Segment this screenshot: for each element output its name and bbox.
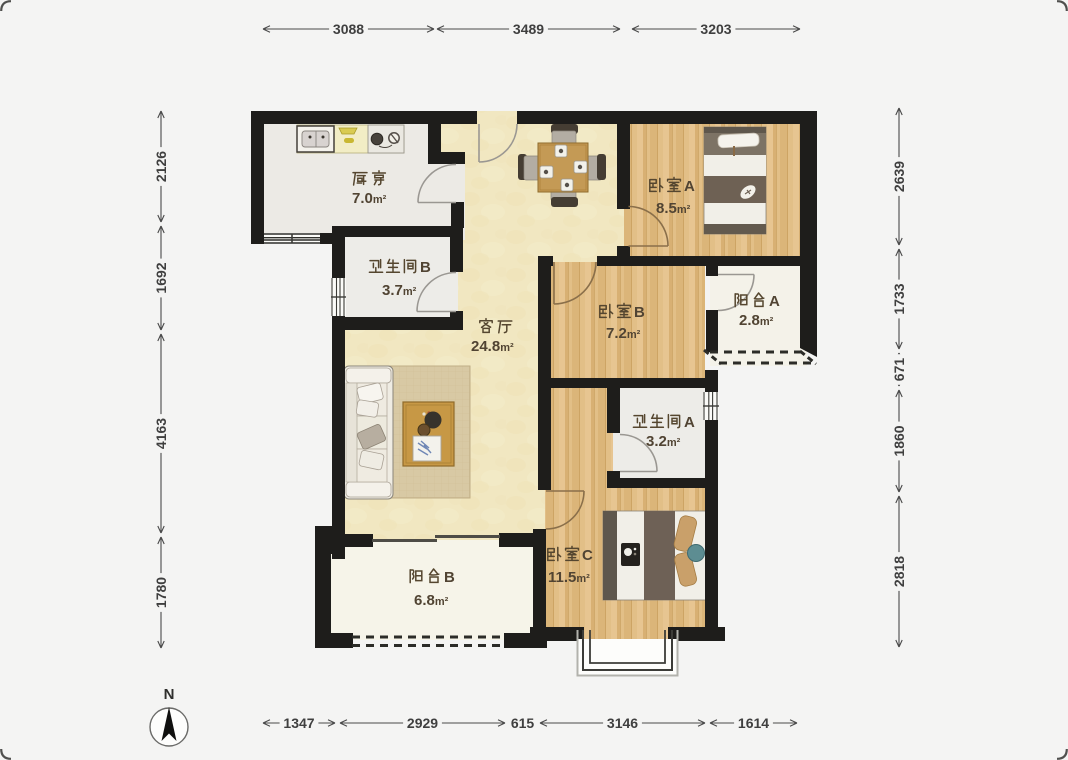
svg-text:B: B: [634, 304, 645, 321]
svg-text:1692: 1692: [153, 262, 169, 293]
svg-text:3203: 3203: [700, 21, 731, 37]
svg-text:C: C: [582, 547, 593, 564]
svg-text:1860: 1860: [891, 425, 907, 456]
svg-text:N: N: [164, 686, 175, 703]
svg-text:A: A: [684, 178, 695, 195]
svg-text:671: 671: [891, 358, 907, 382]
svg-text:3489: 3489: [513, 21, 544, 37]
svg-text:B: B: [420, 259, 431, 276]
svg-text:A: A: [684, 414, 695, 431]
svg-text:1733: 1733: [891, 283, 907, 314]
svg-text:2639: 2639: [891, 161, 907, 192]
svg-text:3146: 3146: [607, 715, 638, 731]
svg-text:2126: 2126: [153, 151, 169, 182]
svg-text:615: 615: [511, 715, 535, 731]
svg-text:2929: 2929: [407, 715, 438, 731]
svg-text:A: A: [769, 293, 780, 310]
svg-text:1780: 1780: [153, 577, 169, 608]
svg-text:1614: 1614: [738, 715, 769, 731]
svg-text:4163: 4163: [153, 418, 169, 449]
svg-text:B: B: [444, 569, 455, 586]
svg-text:2818: 2818: [891, 556, 907, 587]
svg-text:3088: 3088: [333, 21, 364, 37]
svg-text:1347: 1347: [283, 715, 314, 731]
